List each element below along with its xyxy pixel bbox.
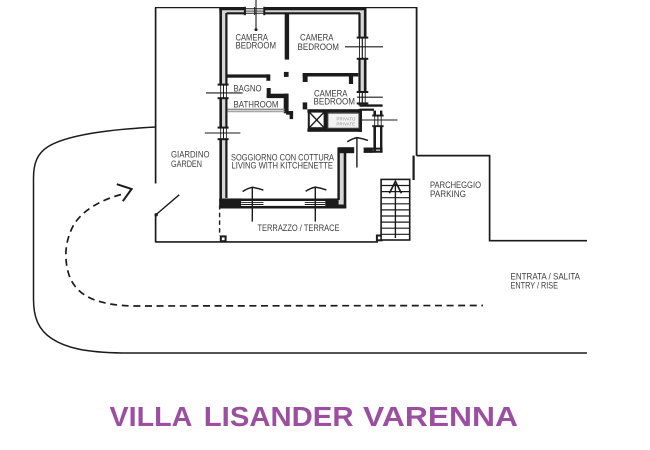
svg-text:BATHROOM: BATHROOM — [234, 99, 279, 109]
svg-text:VILLA: VILLA — [110, 401, 193, 432]
svg-text:TERRAZZO / TERRACE: TERRAZZO / TERRACE — [258, 223, 340, 233]
svg-text:CAMERA: CAMERA — [300, 32, 334, 42]
svg-text:BEDROOM: BEDROOM — [314, 97, 356, 107]
svg-text:BAGNO: BAGNO — [234, 83, 262, 93]
svg-text:BEDROOM: BEDROOM — [236, 40, 277, 50]
svg-text:BEDROOM: BEDROOM — [298, 42, 340, 52]
svg-text:LIVING WITH KITCHENETTE: LIVING WITH KITCHENETTE — [232, 161, 334, 171]
svg-text:ENTRY / RISE: ENTRY / RISE — [511, 280, 559, 290]
svg-text:GARDEN: GARDEN — [171, 159, 202, 169]
svg-text:LISANDER: LISANDER — [204, 401, 354, 432]
svg-text:PARKING: PARKING — [430, 189, 466, 199]
svg-text:VARENNA: VARENNA — [363, 401, 518, 432]
svg-text:GIARDINO: GIARDINO — [171, 149, 210, 159]
svg-text:PRIVATE: PRIVATE — [337, 121, 356, 126]
